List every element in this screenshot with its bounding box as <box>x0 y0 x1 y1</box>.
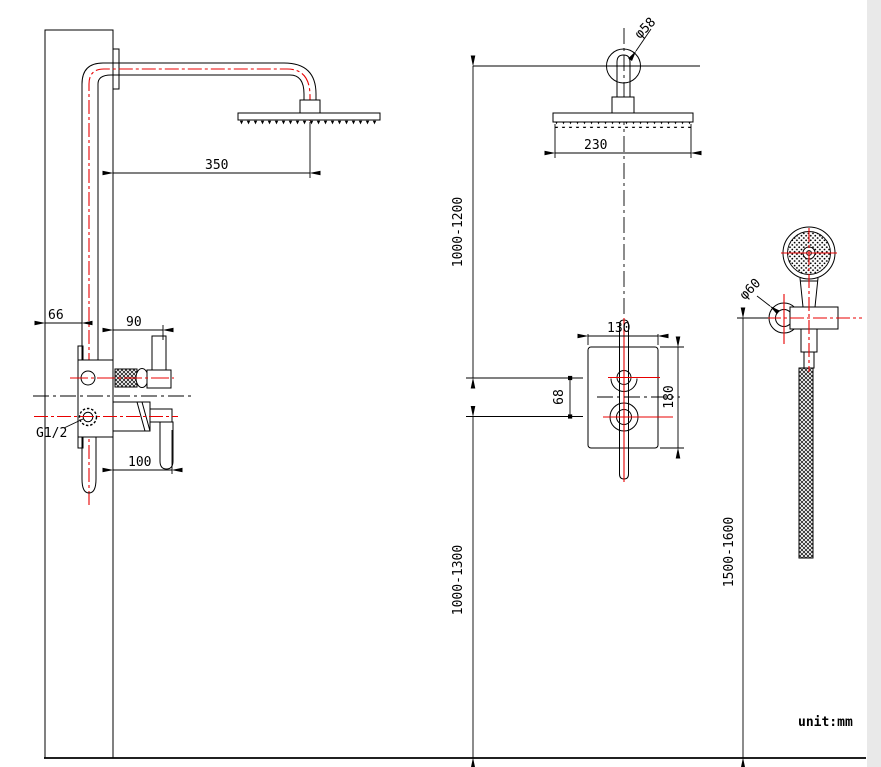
dim-130-label: 130 <box>607 321 630 336</box>
dim-valve-height-label: 1000-1300 <box>451 545 466 615</box>
dim-180-label: 180 <box>662 385 677 408</box>
nozzle-ticks-front <box>555 122 691 128</box>
valve-body <box>78 360 113 437</box>
dim-68-label: 68 <box>552 389 567 405</box>
cad-canvas: 350 66 90 100 G1/2 <box>0 0 881 767</box>
diverter-knob-lever <box>152 336 166 370</box>
dim-holder-height-label: 1500-1600 <box>722 517 737 587</box>
dim-350-label: 350 <box>205 158 228 173</box>
dim-90-label: 90 <box>126 315 142 330</box>
dim-100-label: 100 <box>128 455 151 470</box>
head-connector-side <box>300 100 320 113</box>
shower-head-front <box>553 113 693 122</box>
unit-label: unit:mm <box>798 715 853 730</box>
nozzle-ticks-side <box>240 120 378 126</box>
mixer-plate <box>588 347 658 448</box>
dim-head-height-label: 1000-1200 <box>451 197 466 267</box>
dim-230-label: 230 <box>584 138 607 153</box>
right-scrollbar[interactable] <box>867 0 881 767</box>
head-connector-front <box>612 97 634 113</box>
lever-arm <box>150 409 172 422</box>
shower-hose <box>799 368 813 558</box>
dim-66-label: 66 <box>48 308 64 323</box>
lever-handle-down <box>160 422 173 469</box>
diverter-knob-base <box>147 370 171 388</box>
g12-label: G1/2 <box>36 426 67 441</box>
shower-installation-drawing: 350 66 90 100 G1/2 <box>0 0 881 767</box>
shower-head-side <box>238 113 380 120</box>
